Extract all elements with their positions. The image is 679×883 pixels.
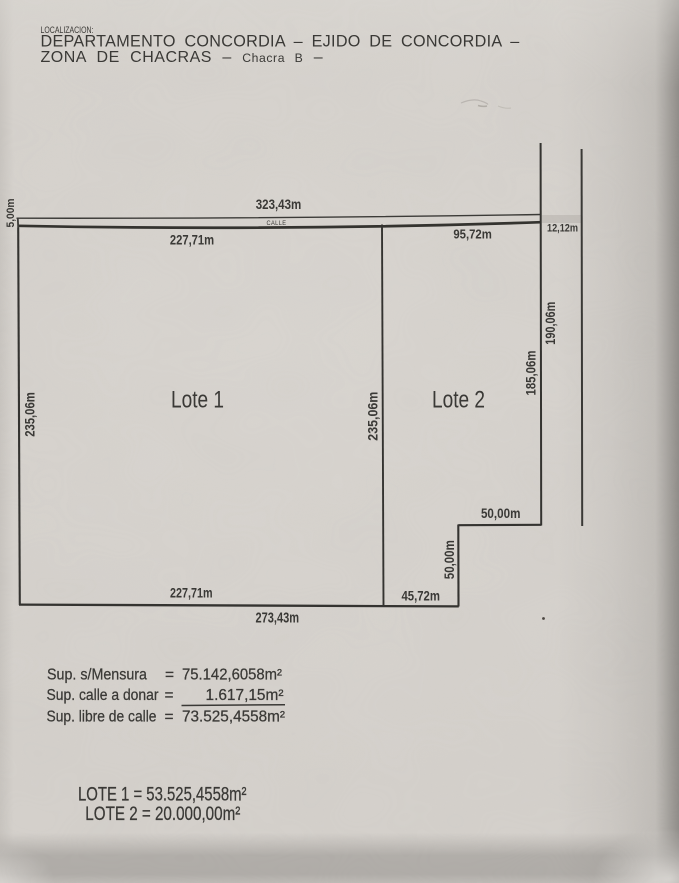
svg-text:Sup. s/Mensura: Sup. s/Mensura bbox=[47, 667, 147, 684]
svg-text:190,06m: 190,06m bbox=[542, 302, 558, 345]
svg-text:5,00m: 5,00m bbox=[5, 198, 17, 227]
svg-text:73.525,4558m²: 73.525,4558m² bbox=[182, 709, 285, 726]
svg-text:323,43m: 323,43m bbox=[256, 196, 302, 212]
svg-text:LOTE 1 = 53.525,4558m²: LOTE 1 = 53.525,4558m² bbox=[78, 785, 247, 806]
svg-text:=: = bbox=[165, 667, 174, 684]
svg-text:DEPARTAMENTO CONCORDIA – EJIDO: DEPARTAMENTO CONCORDIA – EJIDO DE CONCOR… bbox=[41, 32, 520, 51]
svg-text:45,72m: 45,72m bbox=[401, 588, 440, 603]
svg-text:CALLE: CALLE bbox=[267, 220, 287, 227]
svg-text:235,06m: 235,06m bbox=[365, 392, 381, 441]
svg-text:227,71m: 227,71m bbox=[170, 232, 214, 248]
svg-text:=: = bbox=[165, 709, 174, 726]
svg-text:Lote 1: Lote 1 bbox=[171, 387, 224, 414]
svg-text:Lote 2: Lote 2 bbox=[432, 387, 485, 414]
svg-text:50,00m: 50,00m bbox=[442, 540, 457, 579]
svg-text:75.142,6058m²: 75.142,6058m² bbox=[182, 667, 282, 684]
svg-text:Sup. calle a donar: Sup. calle a donar bbox=[47, 687, 159, 704]
svg-text:235,06m: 235,06m bbox=[22, 392, 38, 437]
svg-text:ZONA DE CHACRAS – Chacra B –: ZONA DE CHACRAS – Chacra B – bbox=[41, 49, 324, 66]
svg-text:185,06m: 185,06m bbox=[523, 351, 539, 396]
svg-text:12,12m: 12,12m bbox=[547, 223, 578, 235]
svg-text:50,00m: 50,00m bbox=[481, 506, 521, 521]
svg-text:LOTE 2 = 20.000,00m²: LOTE 2 = 20.000,00m² bbox=[85, 804, 240, 825]
svg-text:273,43m: 273,43m bbox=[256, 611, 300, 627]
svg-text:95,72m: 95,72m bbox=[453, 226, 492, 241]
svg-text:=: = bbox=[165, 687, 174, 704]
svg-text:Sup. libre de calle: Sup. libre de calle bbox=[47, 709, 157, 726]
svg-text:1.617,15m²: 1.617,15m² bbox=[206, 687, 284, 704]
svg-text:227,71m: 227,71m bbox=[170, 585, 213, 600]
